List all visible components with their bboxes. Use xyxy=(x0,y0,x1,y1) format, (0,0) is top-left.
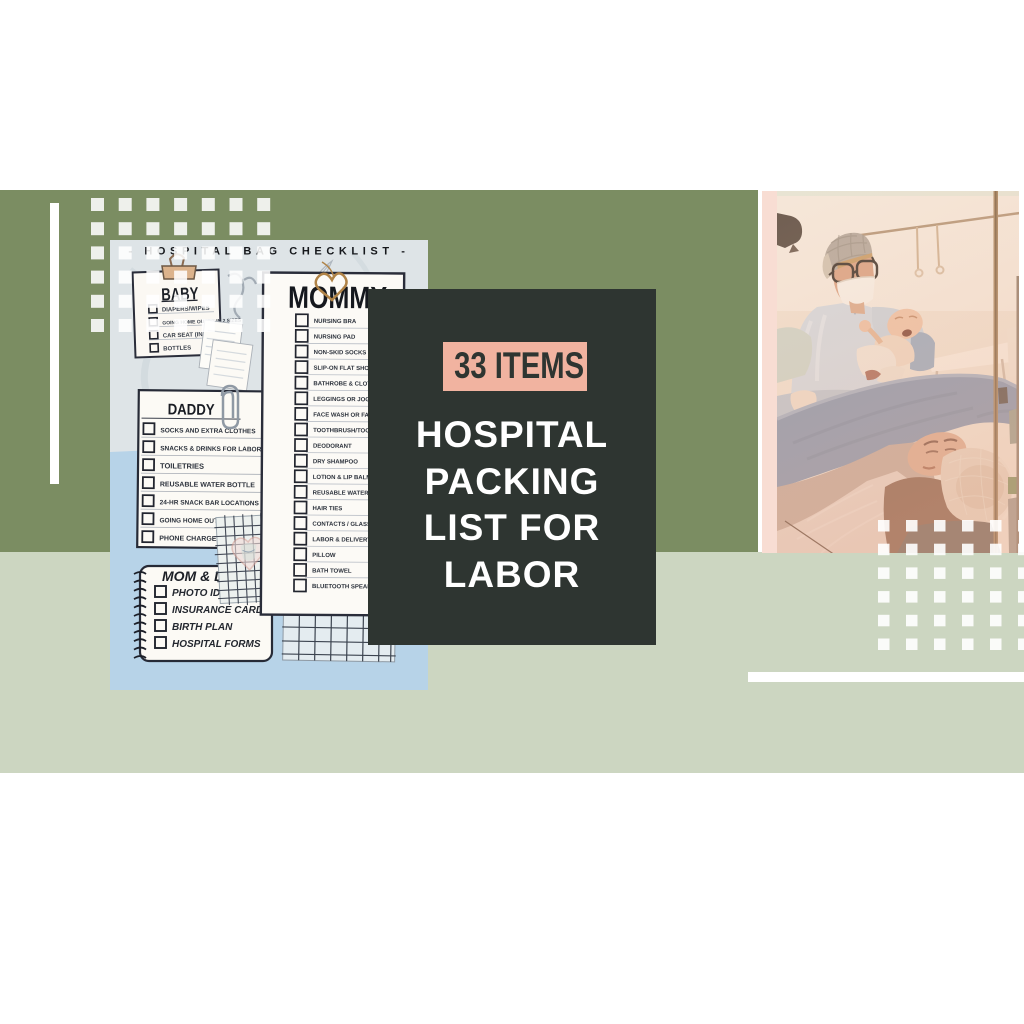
svg-text:24-HR SNACK BAR LOCATIONS: 24-HR SNACK BAR LOCATIONS xyxy=(160,499,260,507)
svg-text:BATH TOWEL: BATH TOWEL xyxy=(312,568,352,574)
svg-text:DADDY: DADDY xyxy=(168,401,216,418)
svg-text:NURSING PAD: NURSING PAD xyxy=(314,334,356,340)
svg-text:SNACKS & DRINKS FOR LABOR: SNACKS & DRINKS FOR LABOR xyxy=(160,445,261,453)
svg-text:SOCKS AND EXTRA CLOTHES: SOCKS AND EXTRA CLOTHES xyxy=(160,427,256,435)
svg-text:NON-SKID SOCKS: NON-SKID SOCKS xyxy=(314,350,367,356)
svg-text:DEODORANT: DEODORANT xyxy=(313,444,352,450)
svg-text:HOSPITAL FORMS: HOSPITAL FORMS xyxy=(172,639,261,650)
svg-text:REUSABLE WATER BOTTLE: REUSABLE WATER BOTTLE xyxy=(160,481,256,489)
svg-text:PILLOW: PILLOW xyxy=(312,553,336,559)
svg-text:LOTION & LIP BALM: LOTION & LIP BALM xyxy=(313,475,372,481)
svg-text:TOILETRIES: TOILETRIES xyxy=(160,461,204,470)
svg-text:HAIR TIES: HAIR TIES xyxy=(313,506,343,512)
svg-text:NURSING BRA: NURSING BRA xyxy=(314,319,357,325)
svg-text:INSURANCE CARD: INSURANCE CARD xyxy=(172,605,263,616)
svg-text:DRY SHAMPOO: DRY SHAMPOO xyxy=(313,459,358,465)
svg-text:BIRTH PLAN: BIRTH PLAN xyxy=(172,622,233,633)
